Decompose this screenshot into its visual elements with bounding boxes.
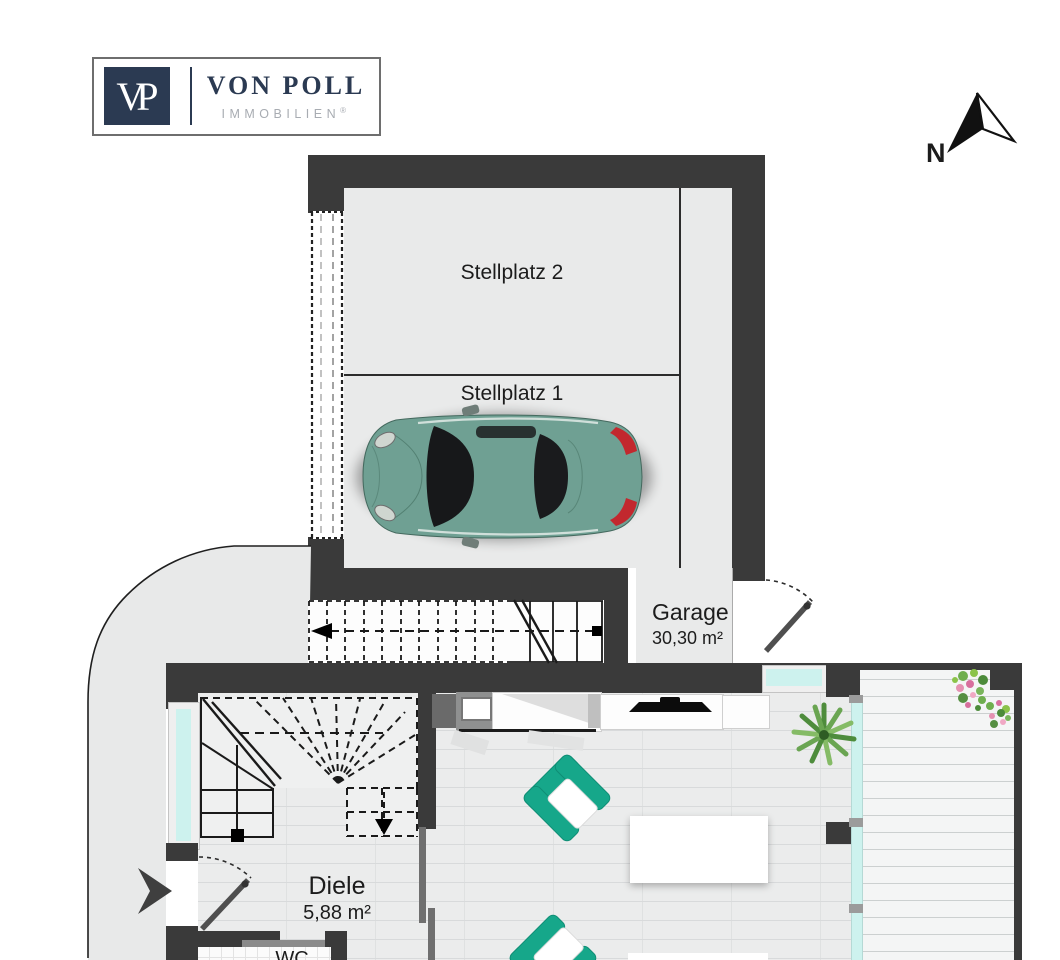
house-wall-top [166,663,860,693]
wc-room-label: WC [262,948,322,960]
north-arrow-icon [947,93,1014,153]
house-wall-left-b [166,843,198,861]
wc-door-lintel [242,940,326,947]
garage-room-label: Garage [652,599,729,626]
stair-side-wall [418,663,436,829]
company-logo: VP VON POLL IMMOBILIEN® [92,57,381,136]
garage-floor [344,188,732,568]
north-label: N [926,138,946,169]
glass-wall-top-stub [826,663,860,697]
terrace-deck [860,663,1016,960]
dining-table [630,816,768,883]
side-table-edge [628,953,768,960]
garage-wall-top [308,155,765,188]
kitchen-end-panel [432,694,458,728]
entrance-arrow-icon [138,868,172,914]
floorplan-canvas: Stellplatz 2 Stellplatz 1 Garage 30,30 m… [0,0,1060,960]
stellplatz2-label: Stellplatz 2 [362,261,662,285]
glass-mullion [849,818,863,827]
logo-name: VON POLL [198,71,374,101]
logo-divider [190,67,192,125]
stellplatz1-label: Stellplatz 1 [362,382,662,406]
garage-wall-left-upper [308,155,344,213]
garage-side-door [766,580,813,651]
wall-gap [628,568,636,663]
diele-room-area: 5,88 m² [272,902,402,925]
diele-room-label: Diele [272,872,402,901]
logo-subtitle: IMMOBILIEN® [198,106,374,121]
kitchen-counter-3 [722,695,770,729]
partition-thin-b [428,908,435,960]
garage-wall-bottom-mass [308,568,628,665]
house-wall-left-c [166,926,198,960]
garage-wall-right [732,155,765,581]
logo-monogram: VP [104,67,170,125]
glass-mullion [849,904,863,913]
kitchen-counter-2 [600,694,724,730]
logo-subtitle-text: IMMOBILIEN [221,107,340,121]
terrace-wall-right [1014,663,1022,960]
garage-room-area: 30,30 m² [652,628,723,649]
kitchen-window-glass [766,669,822,686]
registered-mark: ® [340,106,350,115]
terrace-glass-wall [851,695,863,960]
glass-mullion [849,695,863,703]
kitchen-sink [461,697,492,721]
wc-wall-corner-b [331,945,347,960]
kitchen-counter-1 [492,692,602,732]
garage-door [310,211,344,539]
partition-thin-a [419,827,426,923]
hall-window-glass [176,709,191,841]
